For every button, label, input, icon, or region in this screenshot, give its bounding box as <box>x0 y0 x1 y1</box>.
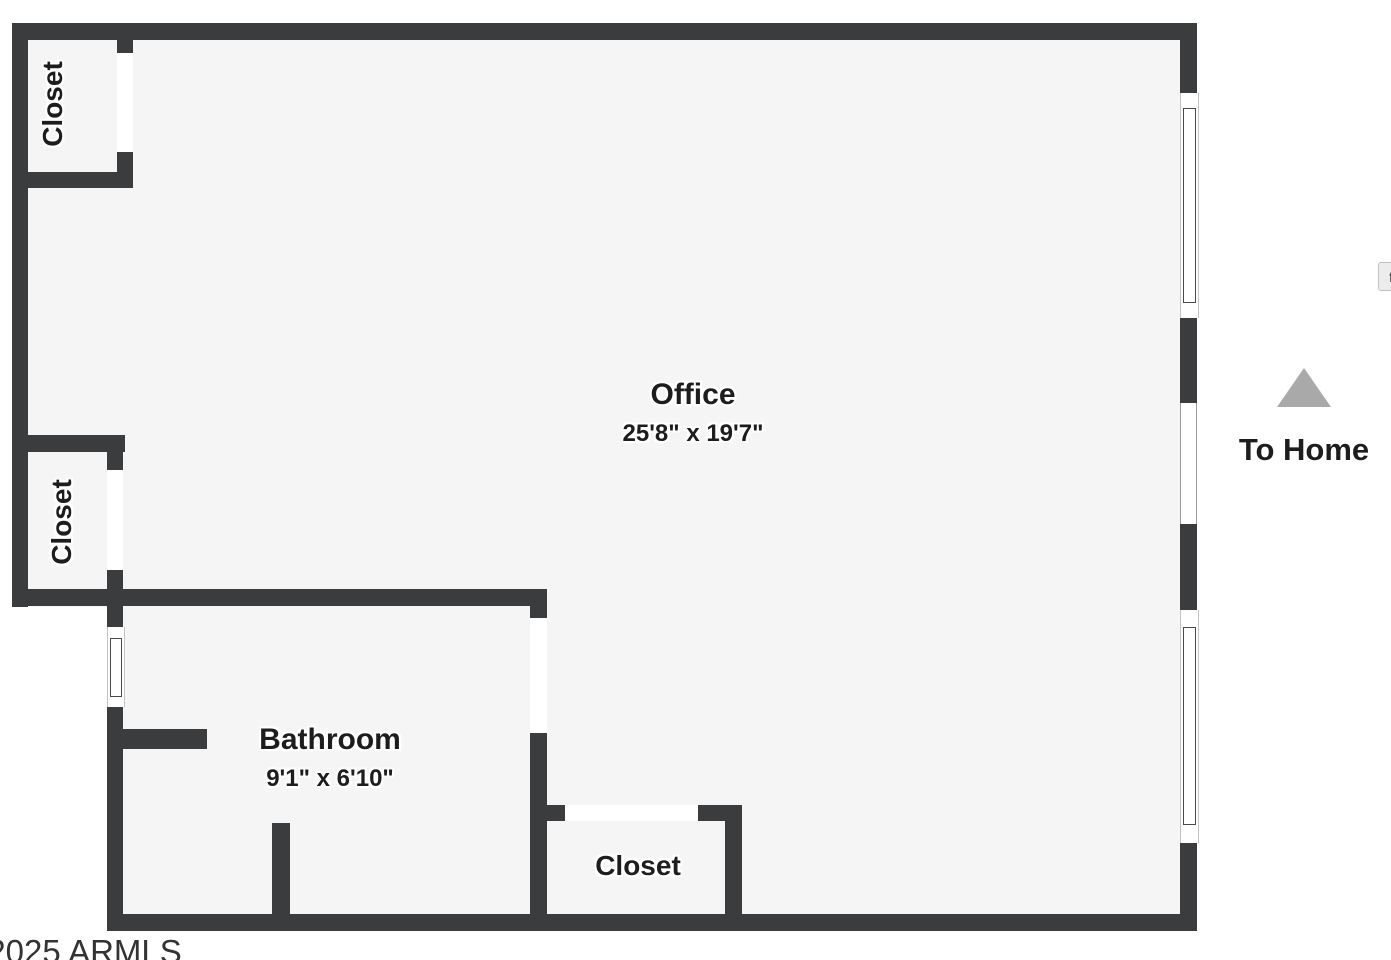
closet2-right-wall <box>107 435 123 470</box>
door-opening <box>117 53 133 152</box>
wall-right-segment <box>1180 524 1197 610</box>
bathroom-top-wall <box>12 589 547 606</box>
open-passage-to-home <box>1180 403 1197 524</box>
window-icon <box>1180 93 1199 318</box>
fullscreen-button[interactable]: f <box>1378 262 1391 291</box>
bathroom-partition-wall <box>272 823 290 931</box>
bathroom-right-wall <box>530 589 547 618</box>
door-opening <box>107 470 123 570</box>
door-opening <box>530 618 547 733</box>
floor-plan: Office 25'8" x 19'7" Bathroom 9'1" x 6'1… <box>0 0 1391 960</box>
wall-right-segment <box>1180 318 1197 403</box>
wall-right-segment <box>1180 23 1197 93</box>
closet3-right-wall <box>725 805 742 931</box>
bathroom-left-wall <box>107 707 123 931</box>
bathroom-partition-wall <box>123 729 207 749</box>
floor-area <box>28 40 1180 914</box>
bathroom-left-wall <box>107 606 123 627</box>
closet1-right-wall <box>117 38 133 53</box>
exterior-area <box>0 607 107 960</box>
bathroom-label: Bathroom <box>230 723 430 758</box>
up-triangle-icon <box>1277 368 1331 407</box>
office-dimensions: 25'8" x 19'7" <box>568 420 818 448</box>
door-opening <box>565 805 698 821</box>
wall-top-exterior <box>12 23 1197 40</box>
bathroom-dimensions: 9'1" x 6'10" <box>230 765 430 793</box>
bathroom-right-wall <box>530 733 547 931</box>
wall-left-exterior <box>12 23 28 607</box>
window-icon <box>107 627 125 707</box>
closet3-top-wall <box>530 805 565 821</box>
closet-bottom-label: Closet <box>553 850 723 882</box>
copyright-text: ©2025 ARMLS <box>0 933 182 960</box>
wall-bottom-exterior <box>107 914 1197 931</box>
wall-right-segment <box>1180 843 1197 931</box>
closet-top-left-label: Closet <box>37 29 73 179</box>
office-label: Office <box>593 378 793 413</box>
closet-mid-left-label: Closet <box>46 447 82 597</box>
window-icon <box>1180 610 1199 843</box>
to-home-label: To Home <box>1204 432 1391 468</box>
